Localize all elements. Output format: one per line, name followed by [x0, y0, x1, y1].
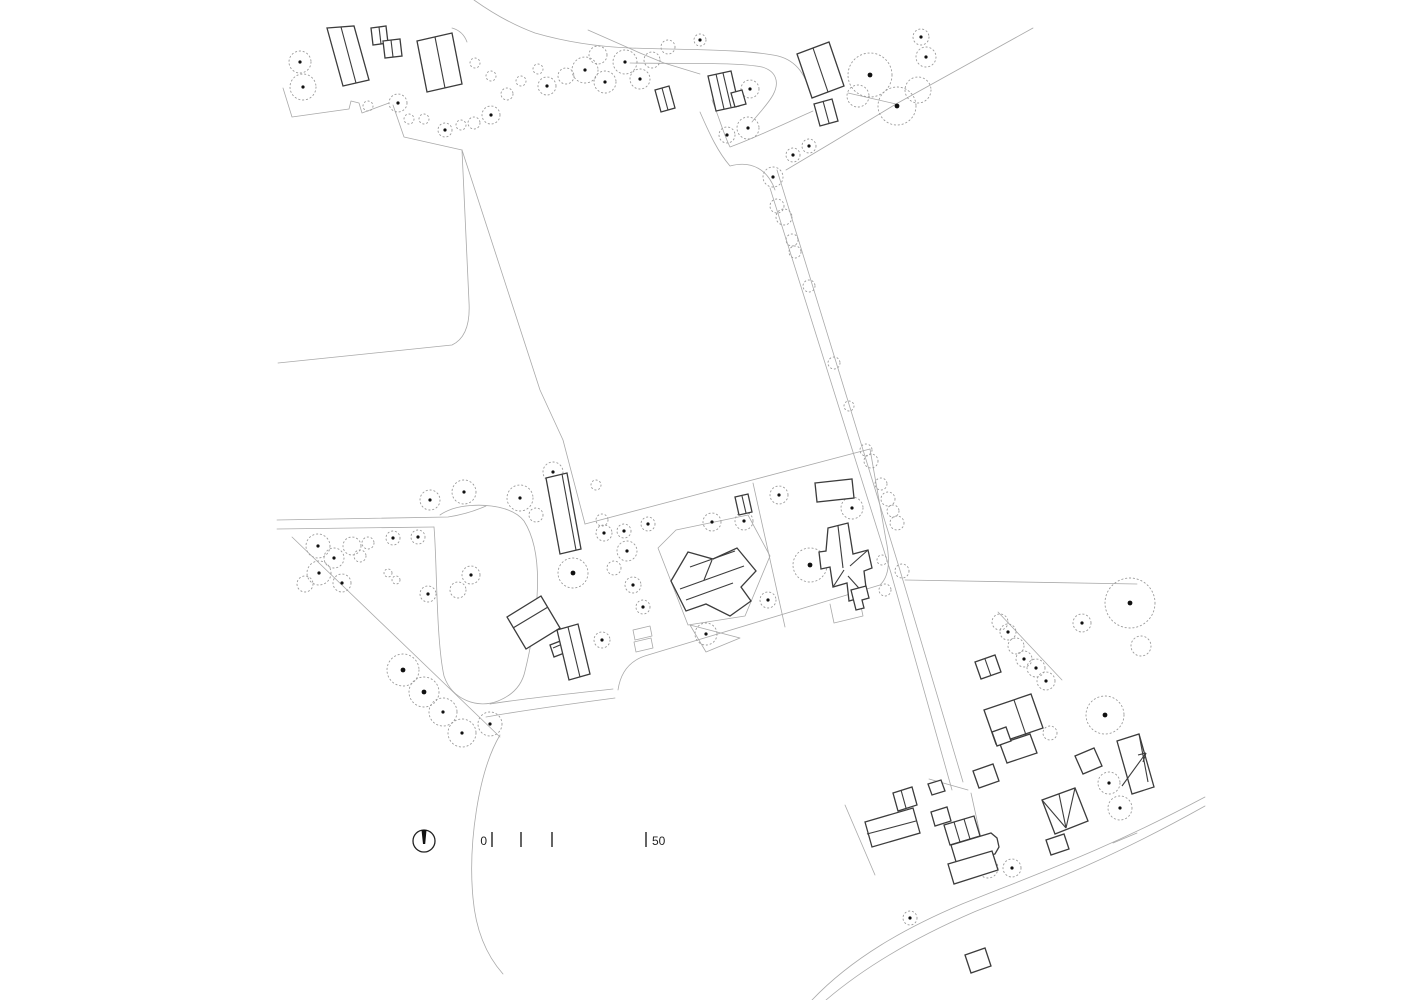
road-line: [434, 505, 538, 704]
site-plan: 0 50: [0, 0, 1414, 1000]
tree-trunk-dot: [641, 605, 644, 608]
tree-canopy-icon: [879, 584, 891, 596]
tree-trunk-dot: [924, 55, 927, 58]
tree-trunk-dot: [317, 571, 320, 574]
tree-trunk-dot: [1006, 630, 1009, 633]
tree-canopy-icon: [297, 576, 313, 592]
tree-trunk-dot: [462, 490, 465, 493]
tree-canopy-icon: [516, 76, 526, 86]
tree-trunk-dot: [704, 632, 707, 635]
building: [928, 780, 945, 795]
tree-canopy-icon: [789, 246, 801, 258]
tree-trunk-dot: [1118, 806, 1121, 809]
tree-trunk-dot: [807, 144, 810, 147]
tree-trunk-dot: [469, 573, 472, 576]
tree-trunk-dot: [416, 535, 419, 538]
road-line: [633, 626, 652, 640]
tree-canopy-icon: [384, 569, 392, 577]
tree-trunk-dot: [426, 592, 429, 595]
tree-trunk-dot: [1080, 621, 1083, 624]
tree-canopy-icon: [905, 77, 931, 103]
building: [507, 596, 560, 649]
tree-canopy-icon: [844, 401, 854, 411]
tree-canopy-icon: [363, 101, 373, 111]
tree-trunk-dot: [631, 583, 634, 586]
tree-trunk-dot: [1107, 781, 1110, 784]
tree-trunk-dot: [638, 77, 641, 80]
road-line: [486, 698, 615, 717]
tree-trunk-dot: [850, 506, 853, 509]
tree-trunk-dot: [460, 731, 463, 734]
building: [973, 764, 999, 788]
road-line: [277, 527, 434, 529]
tree-trunk-dot: [623, 60, 626, 63]
tree-trunk-dot: [583, 68, 586, 71]
tree-trunk-dot: [725, 133, 728, 136]
tree-trunk-dot: [396, 101, 399, 104]
tree-trunk-dot: [298, 60, 301, 63]
tree-canopy-icon: [589, 46, 607, 64]
tree-canopy-icon: [607, 561, 621, 575]
north-arrow-needle-icon: [422, 830, 427, 844]
building: [984, 694, 1043, 744]
tree-canopy-icon: [450, 582, 466, 598]
road-line: [393, 105, 462, 150]
tree-canopy-icon: [468, 117, 480, 129]
road-line: [634, 638, 653, 652]
road-line: [292, 537, 500, 737]
tree-trunk-dot: [625, 549, 628, 552]
tree-trunk-dot: [428, 498, 431, 501]
road-line: [770, 188, 952, 790]
tree-trunk-dot: [1022, 657, 1025, 660]
road-line: [848, 93, 896, 104]
road-line: [905, 580, 1137, 584]
tree-trunk-dot: [489, 113, 492, 116]
tree-canopy-icon: [847, 85, 869, 107]
tree-canopy-icon: [887, 505, 899, 517]
road-line: [630, 63, 776, 122]
tree-canopy-icon: [456, 120, 466, 130]
tree-trunk-dot: [698, 38, 701, 41]
tree-trunk-dot: [742, 519, 745, 522]
road-line: [1113, 833, 1137, 843]
road-line: [896, 28, 1033, 104]
tree-trunk-dot: [443, 128, 446, 131]
tree-trunk-dot: [646, 522, 649, 525]
building: [1075, 748, 1102, 774]
building: [327, 26, 369, 86]
tree-trunk-dot: [908, 916, 911, 919]
road-line: [490, 689, 613, 704]
tree-trunk-dot: [340, 581, 343, 584]
tree-trunk-dot: [391, 536, 394, 539]
tree-trunk-dot: [1103, 713, 1108, 718]
road-line: [472, 735, 503, 974]
scale-bar: 0 50: [480, 832, 665, 848]
tree-canopy-icon: [803, 280, 815, 292]
trees-layer: [289, 29, 1155, 925]
tree-canopy-icon: [591, 480, 601, 490]
tree-trunk-dot: [777, 493, 780, 496]
tree-canopy-icon: [661, 40, 675, 54]
tree-trunk-dot: [1034, 666, 1037, 669]
tree-canopy-icon: [529, 508, 543, 522]
north-arrow: [413, 830, 435, 852]
buildings-layer: [327, 26, 1154, 973]
building: [1046, 834, 1069, 855]
scale-max-label: 50: [652, 834, 666, 848]
tree-trunk-dot: [571, 571, 576, 576]
tree-canopy-icon: [419, 114, 429, 124]
tree-trunk-dot: [710, 520, 713, 523]
tree-trunk-dot: [316, 544, 319, 547]
tree-canopy-icon: [343, 537, 361, 555]
tree-trunk-dot: [771, 175, 774, 178]
tree-trunk-dot: [895, 104, 900, 109]
tree-canopy-icon: [533, 64, 543, 74]
tree-canopy-icon: [486, 71, 496, 81]
tree-canopy-icon: [890, 516, 904, 530]
tree-trunk-dot: [602, 531, 605, 534]
tree-trunk-dot: [766, 598, 769, 601]
tree-trunk-dot: [600, 638, 603, 641]
road-line: [474, 0, 630, 48]
tree-canopy-icon: [776, 209, 792, 225]
tree-canopy-icon: [404, 114, 414, 124]
tree-trunk-dot: [488, 722, 491, 725]
tree-canopy-icon: [392, 576, 400, 584]
tree-trunk-dot: [1128, 601, 1133, 606]
tree-canopy-icon: [828, 357, 840, 369]
road-line: [753, 483, 785, 627]
scale-zero-label: 0: [480, 834, 487, 848]
building: [851, 586, 869, 610]
tree-canopy-icon: [362, 537, 374, 549]
road-line: [700, 112, 775, 190]
site-plan-page: 0 50: [0, 0, 1414, 1000]
tree-trunk-dot: [622, 529, 625, 532]
tree-canopy-icon: [596, 514, 608, 526]
tree-trunk-dot: [422, 690, 427, 695]
tree-trunk-dot: [919, 35, 922, 38]
road-line: [462, 150, 585, 524]
road-line: [452, 28, 467, 42]
tree-trunk-dot: [748, 87, 751, 90]
road-line: [278, 150, 469, 363]
tree-trunk-dot: [808, 563, 813, 568]
road-line: [777, 170, 963, 782]
tree-canopy-icon: [881, 492, 895, 506]
tree-canopy-icon: [992, 614, 1008, 630]
tree-trunk-dot: [1044, 679, 1047, 682]
tree-trunk-dot: [746, 126, 749, 129]
road-line: [283, 88, 389, 117]
tree-trunk-dot: [551, 470, 554, 473]
tree-trunk-dot: [441, 710, 444, 713]
tree-canopy-icon: [1131, 636, 1151, 656]
tree-canopy-icon: [470, 58, 480, 68]
tree-trunk-dot: [1010, 866, 1013, 869]
tree-trunk-dot: [868, 73, 873, 78]
tree-canopy-icon: [501, 88, 513, 100]
tree-trunk-dot: [791, 153, 794, 156]
tree-trunk-dot: [401, 668, 406, 673]
tree-trunk-dot: [332, 556, 335, 559]
building: [965, 948, 991, 973]
tree-canopy-icon: [354, 550, 366, 562]
tree-trunk-dot: [545, 84, 548, 87]
road-line: [588, 30, 700, 74]
tree-trunk-dot: [301, 85, 304, 88]
building: [815, 479, 854, 502]
tree-trunk-dot: [518, 496, 521, 499]
tree-trunk-dot: [603, 80, 606, 83]
road-line: [690, 625, 740, 652]
tree-canopy-icon: [1043, 726, 1057, 740]
